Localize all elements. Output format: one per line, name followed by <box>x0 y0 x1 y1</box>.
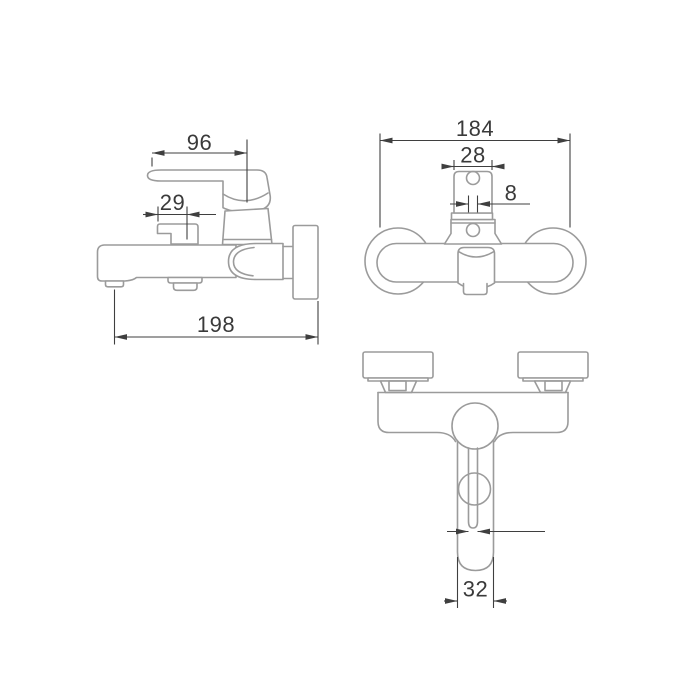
bottom-escutcheon-right <box>518 352 588 378</box>
bottom-body-right <box>495 393 569 442</box>
front-diverter-tab <box>464 284 488 295</box>
faucet-technical-drawing: 96 29 198 <box>0 0 700 700</box>
front-view: 184 28 8 <box>365 116 586 295</box>
side-diverter-knob <box>174 283 198 290</box>
side-step-block <box>158 224 199 244</box>
dim-96-label: 96 <box>187 130 212 155</box>
dim-32-label: 32 <box>463 577 488 602</box>
bottom-view: 32 <box>363 352 588 608</box>
front-lever-base-band <box>452 213 493 220</box>
side-aerator <box>106 281 124 287</box>
side-spout-body <box>98 245 237 281</box>
bottom-escutcheon-left <box>363 352 433 378</box>
side-diverter-flange <box>168 278 202 284</box>
side-view: 96 29 198 <box>98 130 319 345</box>
front-view-faucet-outline <box>365 172 586 295</box>
side-wall-flange <box>293 226 318 300</box>
bottom-view-faucet-outline <box>363 352 588 571</box>
technical-drawing-canvas: 96 29 198 <box>0 0 700 700</box>
side-connector-pipe <box>283 247 293 279</box>
dim-28-label: 28 <box>460 143 485 168</box>
bottom-body-left <box>378 393 456 442</box>
bottom-view-dimensions: 32 <box>444 532 545 609</box>
side-view-faucet-outline <box>98 170 319 299</box>
side-valve-housing <box>229 244 284 280</box>
dim-198-label: 198 <box>197 312 235 337</box>
front-lever-handle <box>454 172 492 214</box>
bottom-diverter-circle <box>459 473 491 505</box>
bottom-cartridge-circle <box>452 403 498 449</box>
side-view-dimensions: 96 29 198 <box>115 130 319 345</box>
dim-29-label: 29 <box>160 190 185 215</box>
dim-184-label: 184 <box>456 116 494 141</box>
dim-8-label: 8 <box>505 181 518 206</box>
bottom-lever-shaft <box>469 448 478 528</box>
